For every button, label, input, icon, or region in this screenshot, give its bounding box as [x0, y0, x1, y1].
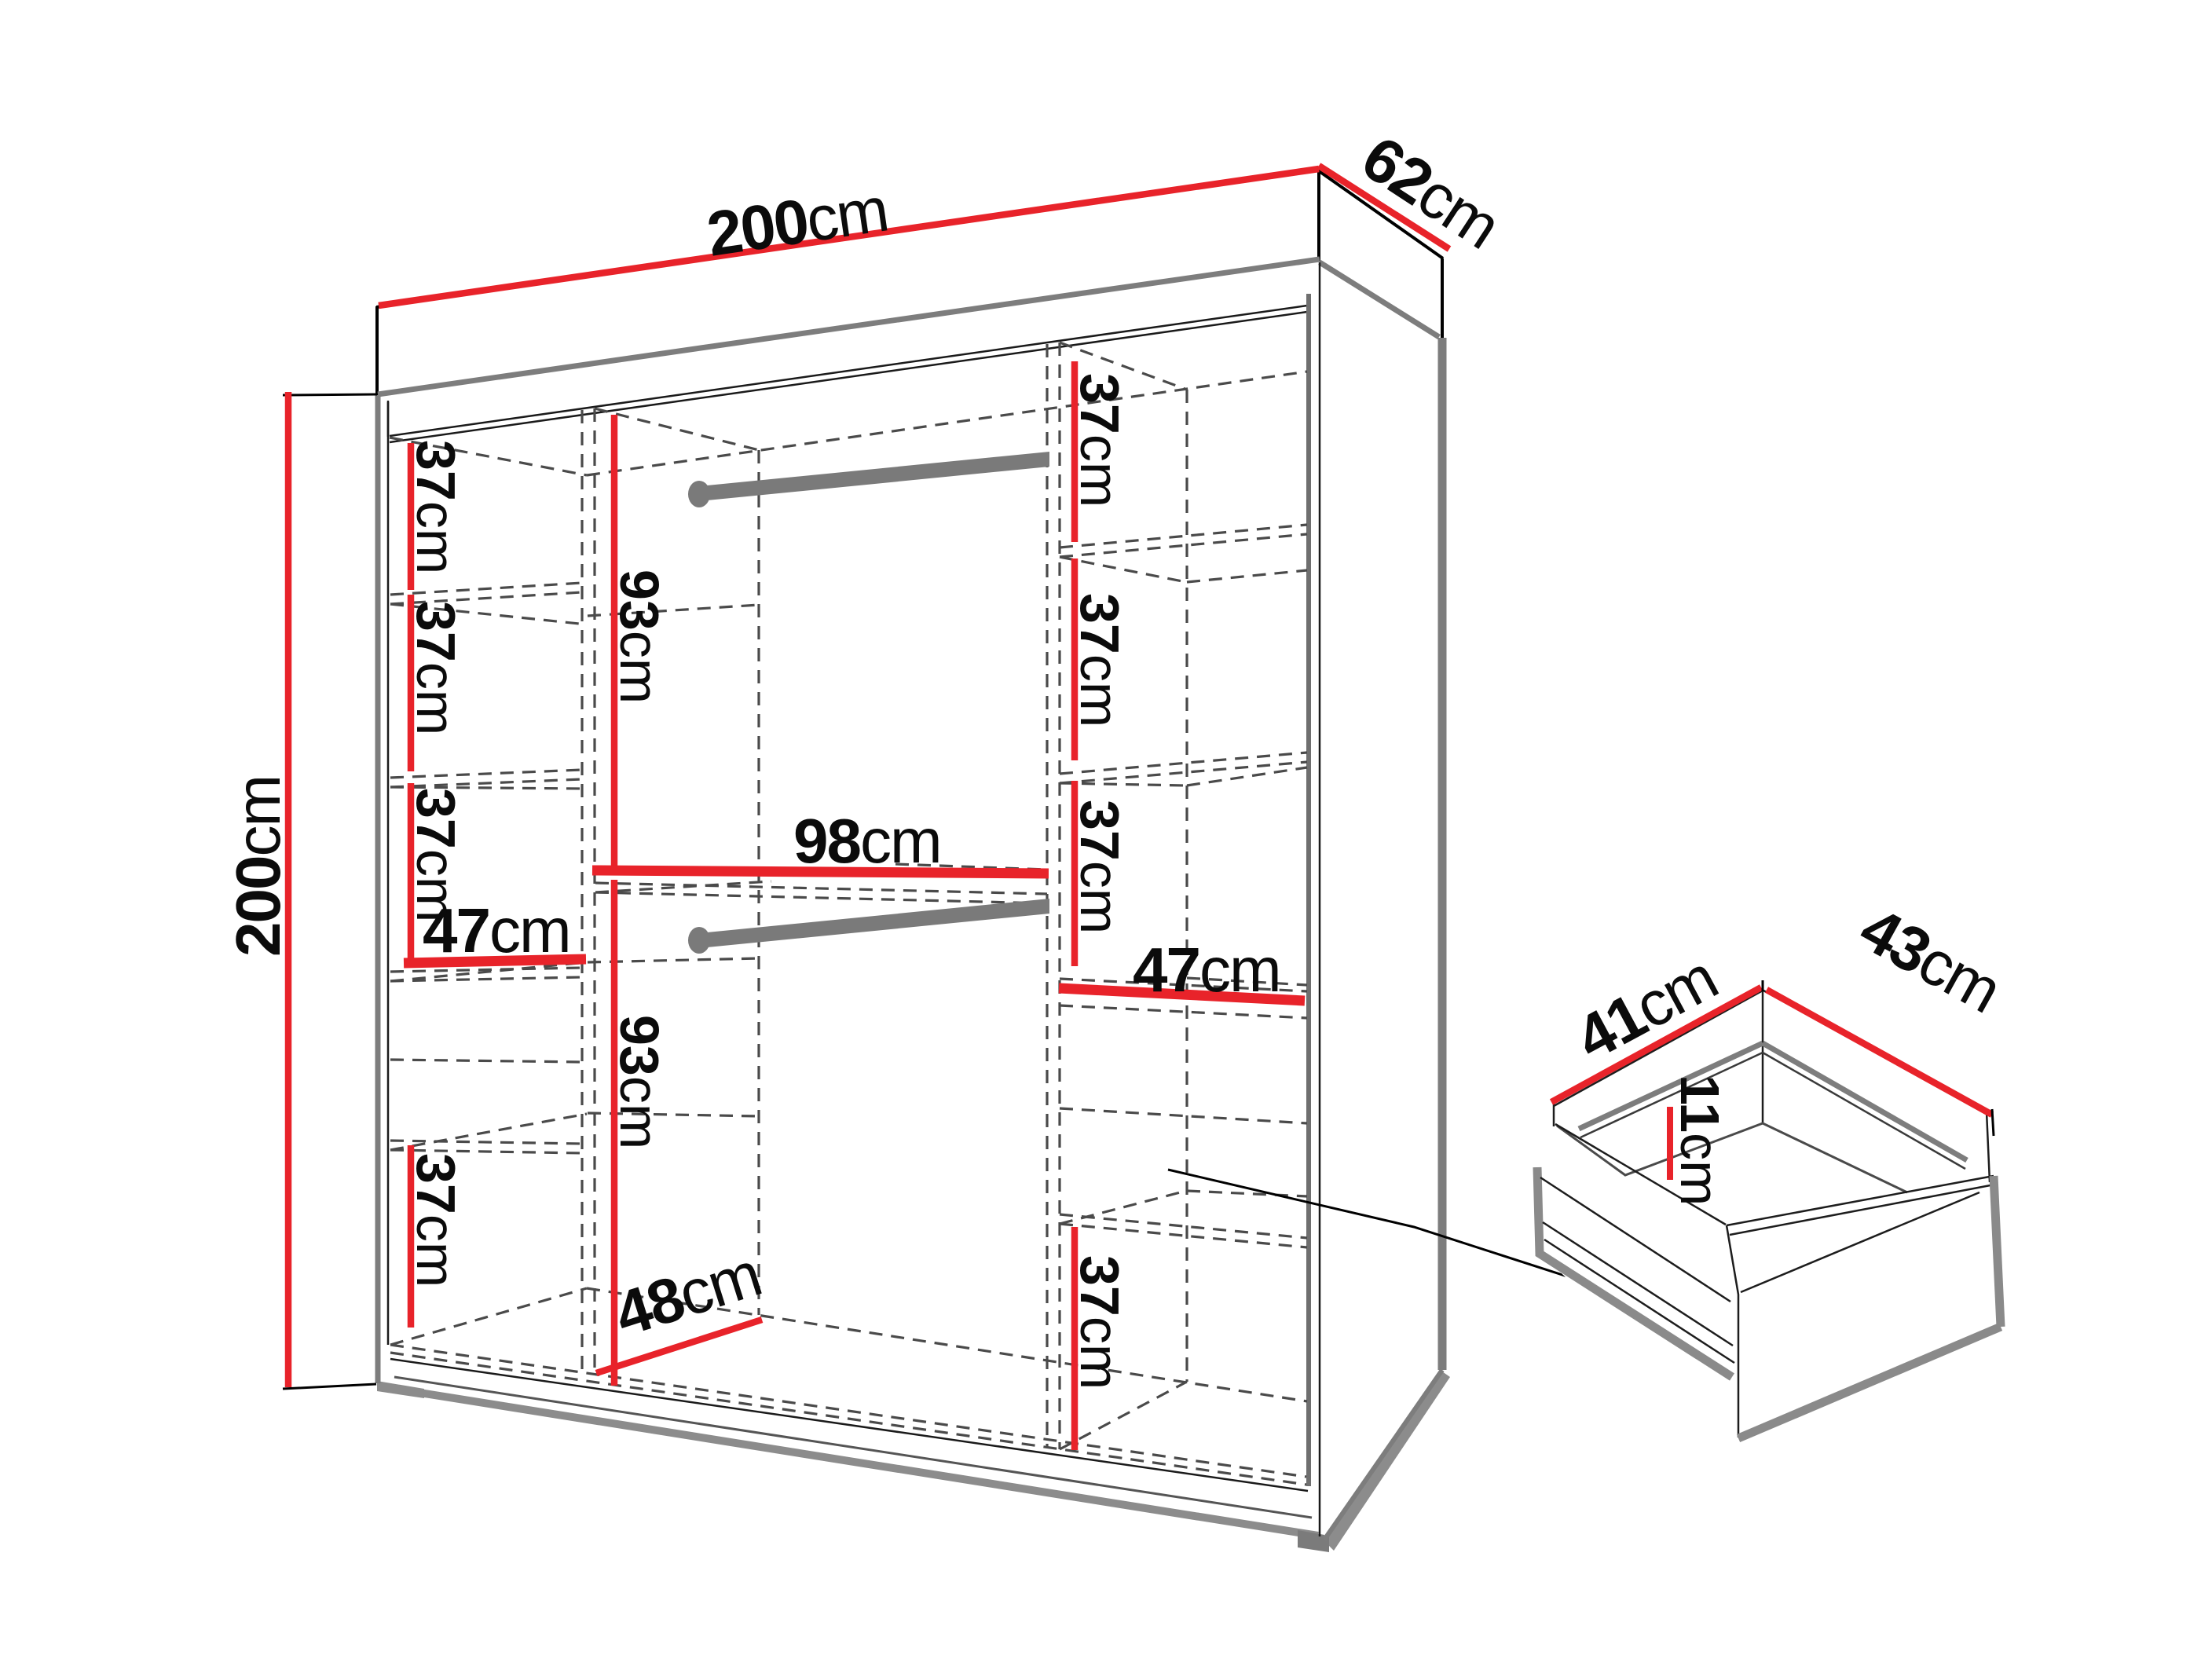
svg-text:37cm: 37cm: [405, 1153, 467, 1287]
svg-text:200cm: 200cm: [223, 776, 293, 957]
svg-text:37cm: 37cm: [1069, 373, 1130, 507]
svg-text:37cm: 37cm: [405, 601, 467, 735]
svg-text:93cm: 93cm: [609, 1015, 670, 1149]
svg-text:37cm: 37cm: [405, 440, 467, 574]
svg-text:37cm: 37cm: [405, 788, 467, 922]
svg-text:37cm: 37cm: [1069, 1255, 1130, 1390]
svg-text:47cm: 47cm: [1133, 935, 1280, 1005]
svg-text:11cm: 11cm: [1669, 1075, 1730, 1206]
svg-text:93cm: 93cm: [609, 569, 670, 704]
svg-text:37cm: 37cm: [1069, 593, 1130, 727]
svg-text:37cm: 37cm: [1069, 800, 1130, 934]
svg-text:98cm: 98cm: [793, 806, 941, 876]
